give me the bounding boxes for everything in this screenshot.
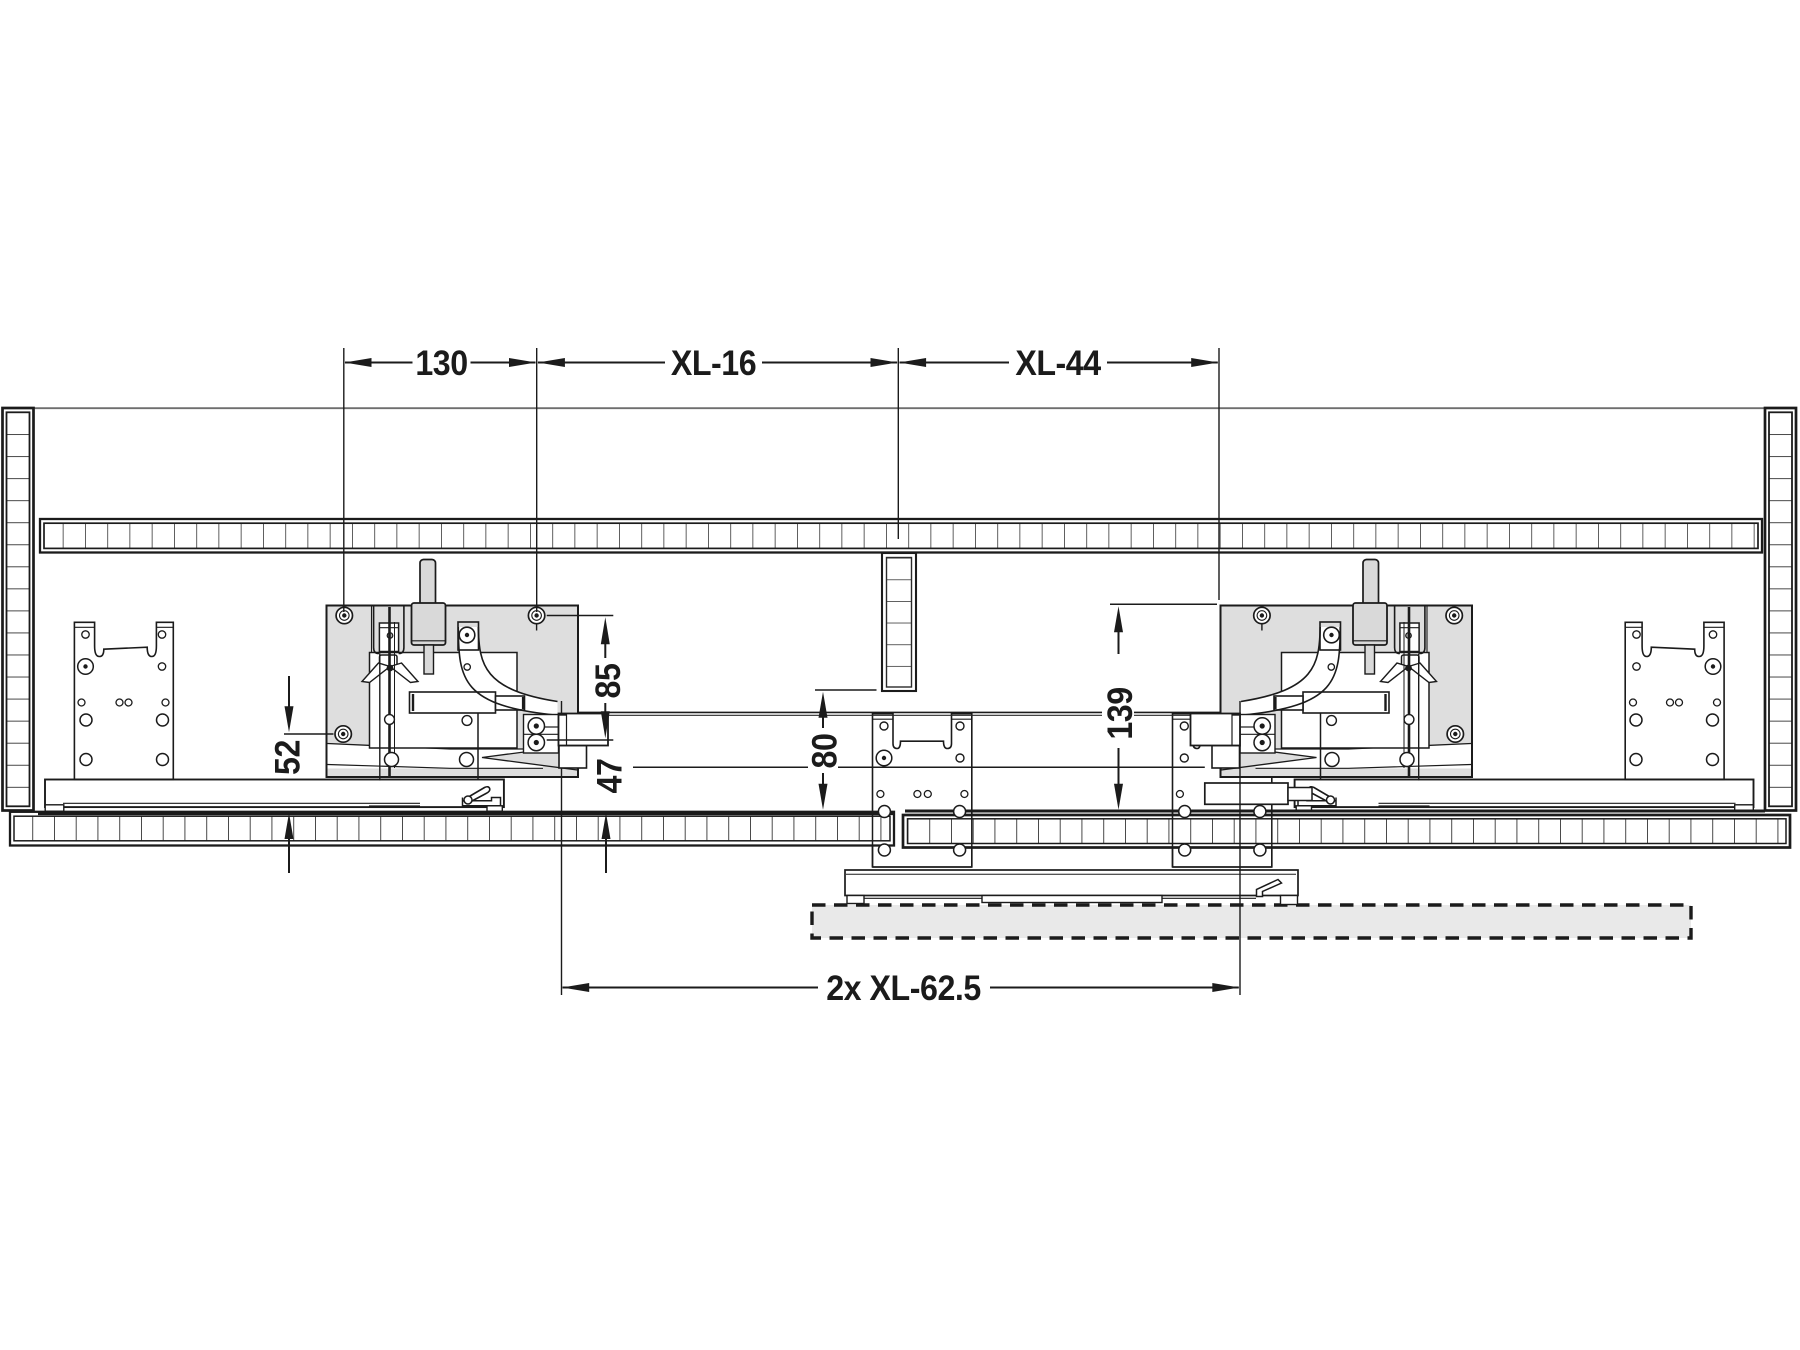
svg-text:130: 130 <box>415 345 467 384</box>
svg-text:85: 85 <box>590 664 629 699</box>
svg-text:52: 52 <box>269 740 308 775</box>
svg-text:XL-44: XL-44 <box>1015 345 1101 384</box>
svg-text:80: 80 <box>806 734 845 769</box>
svg-text:47: 47 <box>591 759 630 794</box>
svg-text:2x XL-62.5: 2x XL-62.5 <box>826 970 981 1009</box>
svg-text:139: 139 <box>1102 687 1141 739</box>
svg-text:XL-16: XL-16 <box>671 345 756 384</box>
